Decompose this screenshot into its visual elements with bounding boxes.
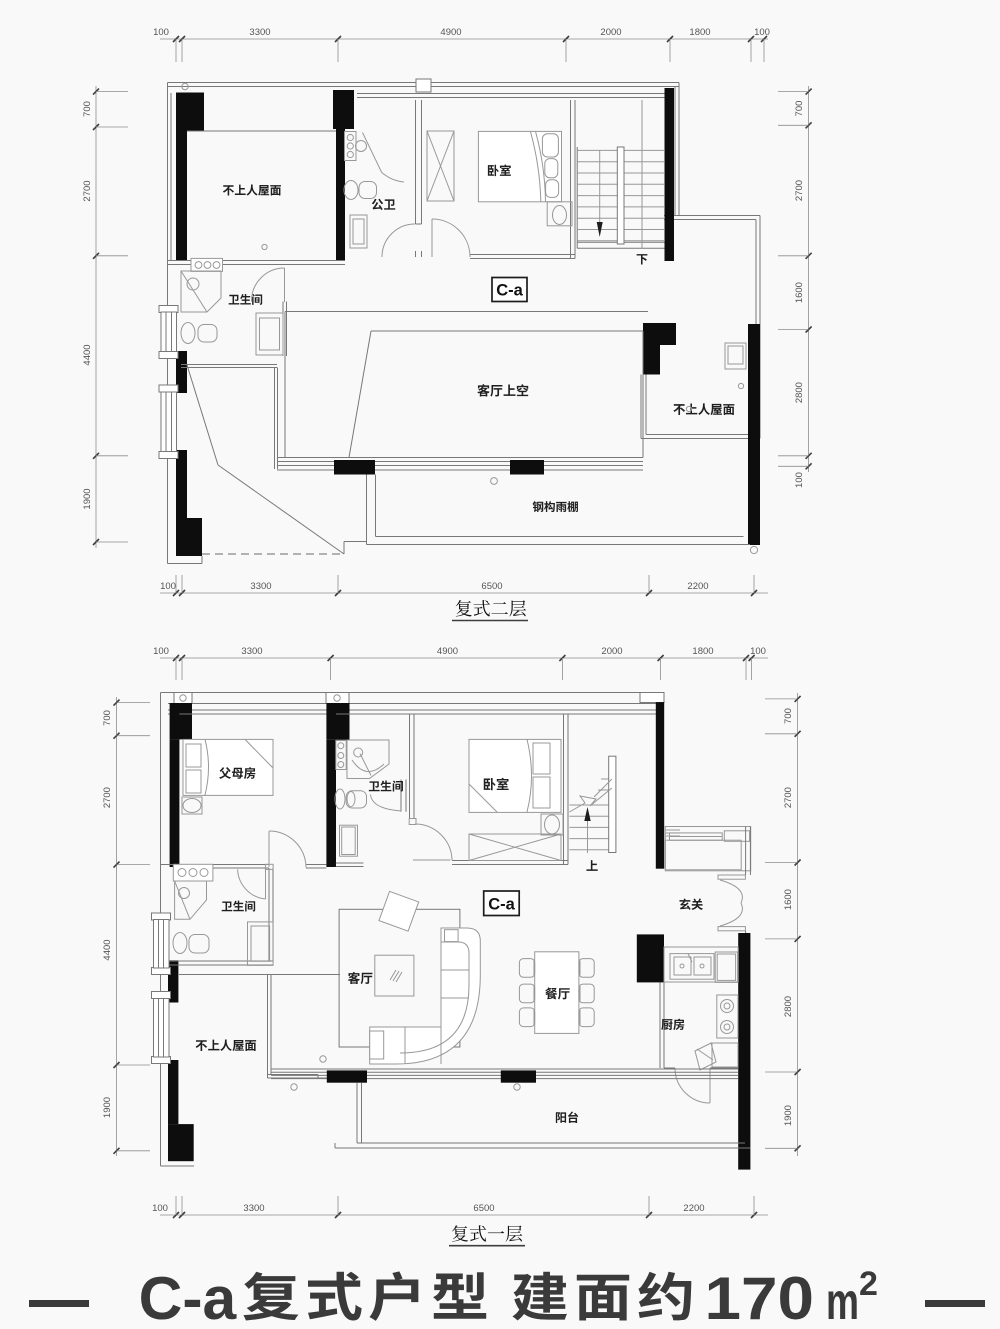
- svg-text:m: m: [826, 1273, 859, 1329]
- svg-text:100: 100: [153, 646, 169, 657]
- svg-text:1800: 1800: [692, 646, 713, 657]
- svg-text:4400: 4400: [102, 939, 113, 960]
- svg-text:C-a: C-a: [496, 282, 523, 300]
- svg-text:1600: 1600: [794, 282, 805, 303]
- svg-text:3300: 3300: [250, 581, 271, 592]
- svg-text:2: 2: [859, 1265, 878, 1303]
- svg-text:C-a: C-a: [139, 1265, 237, 1329]
- svg-text:4900: 4900: [440, 27, 461, 38]
- svg-text:1900: 1900: [82, 488, 93, 509]
- svg-text:100: 100: [754, 27, 770, 38]
- svg-text:100: 100: [152, 1203, 168, 1214]
- svg-text:3300: 3300: [243, 1203, 264, 1214]
- svg-text:4900: 4900: [437, 646, 458, 657]
- svg-text:100: 100: [160, 581, 176, 592]
- svg-text:C-a: C-a: [488, 896, 515, 914]
- svg-text:1800: 1800: [689, 27, 710, 38]
- svg-text:700: 700: [794, 101, 805, 117]
- svg-text:1900: 1900: [102, 1097, 113, 1118]
- svg-text:2700: 2700: [783, 787, 794, 808]
- svg-text:2700: 2700: [82, 180, 93, 201]
- svg-text:2800: 2800: [783, 996, 794, 1017]
- svg-text:4400: 4400: [82, 344, 93, 365]
- svg-text:100: 100: [750, 646, 766, 657]
- svg-text:2200: 2200: [687, 581, 708, 592]
- svg-text:700: 700: [783, 708, 794, 724]
- svg-text:700: 700: [102, 710, 113, 726]
- svg-text:2700: 2700: [102, 787, 113, 808]
- svg-text:2000: 2000: [601, 646, 622, 657]
- svg-text:1600: 1600: [783, 889, 794, 910]
- svg-text:1900: 1900: [783, 1105, 794, 1126]
- svg-text:2000: 2000: [600, 27, 621, 38]
- svg-text:2200: 2200: [683, 1203, 704, 1214]
- svg-text:700: 700: [82, 101, 93, 117]
- svg-text:3300: 3300: [241, 646, 262, 657]
- svg-text:3300: 3300: [249, 27, 270, 38]
- svg-text:100: 100: [794, 472, 805, 488]
- svg-text:170: 170: [705, 1265, 815, 1329]
- svg-text:2800: 2800: [794, 382, 805, 403]
- svg-text:2700: 2700: [794, 180, 805, 201]
- svg-text:6500: 6500: [473, 1203, 494, 1214]
- svg-text:100: 100: [153, 27, 169, 38]
- svg-text:6500: 6500: [481, 581, 502, 592]
